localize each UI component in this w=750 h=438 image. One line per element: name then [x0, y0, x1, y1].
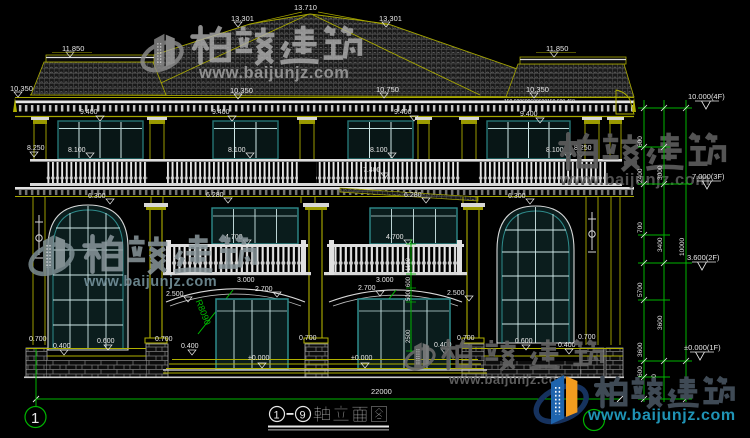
svg-text:2.700: 2.700	[255, 286, 273, 293]
svg-text:9: 9	[300, 410, 306, 422]
svg-text:4.700: 4.700	[386, 234, 404, 241]
svg-text:3.000: 3.000	[376, 277, 394, 284]
svg-text:0.700: 0.700	[457, 335, 475, 342]
svg-text:13.710: 13.710	[294, 3, 317, 12]
svg-text:3600: 3600	[657, 315, 664, 330]
svg-text:8.250: 8.250	[574, 145, 592, 152]
svg-text:22000: 22000	[371, 387, 392, 396]
svg-text:500: 500	[406, 290, 412, 301]
svg-text:0.400: 0.400	[558, 342, 576, 349]
svg-text:3.600(2F): 3.600(2F)	[687, 253, 720, 262]
svg-text:0.600: 0.600	[97, 338, 115, 345]
svg-text:9.400: 9.400	[80, 109, 98, 116]
svg-text:2.700: 2.700	[358, 285, 376, 292]
svg-text:±0.000: ±0.000	[248, 355, 269, 362]
svg-text:10.000(4F): 10.000(4F)	[688, 92, 725, 101]
svg-text:8.100: 8.100	[370, 147, 388, 154]
svg-text:6.300: 6.300	[88, 193, 106, 200]
svg-text:3.000: 3.000	[237, 277, 255, 284]
svg-text:1100: 1100	[406, 257, 412, 271]
svg-text:±0.000(1F): ±0.000(1F)	[684, 343, 721, 352]
svg-text:7.400: 7.400	[363, 167, 381, 174]
svg-text:0.600: 0.600	[515, 338, 533, 345]
svg-text:600: 600	[637, 366, 644, 377]
svg-text:2.500: 2.500	[447, 290, 465, 297]
svg-text:6.280: 6.280	[404, 192, 422, 199]
svg-text:2500: 2500	[406, 329, 412, 343]
svg-text:8.100: 8.100	[228, 147, 246, 154]
svg-text:6.280: 6.280	[206, 192, 224, 199]
svg-text:600: 600	[637, 136, 644, 147]
svg-text:5700: 5700	[637, 282, 644, 297]
svg-text:0.700: 0.700	[29, 336, 47, 343]
svg-text:2400: 2400	[637, 168, 644, 183]
svg-text:10000: 10000	[679, 238, 686, 256]
svg-text:9.400: 9.400	[212, 109, 230, 116]
svg-text:3600: 3600	[637, 342, 644, 357]
svg-text:±0.000: ±0.000	[351, 355, 372, 362]
svg-text:1: 1	[274, 410, 280, 422]
svg-text:0.400: 0.400	[181, 343, 199, 350]
svg-text:www.baijunjz.com: www.baijunjz.com	[198, 64, 349, 82]
svg-text:7.000(3F): 7.000(3F)	[692, 172, 725, 181]
svg-text:0.700: 0.700	[155, 336, 173, 343]
svg-text:150 600600600600150 600 450: 150 600600600600150 600 450	[504, 99, 575, 105]
svg-text:8.250: 8.250	[27, 145, 45, 152]
svg-text:600: 600	[406, 276, 412, 287]
svg-text:3400: 3400	[657, 237, 664, 252]
svg-text:0.400: 0.400	[53, 343, 71, 350]
svg-text:9.400: 9.400	[520, 111, 538, 118]
svg-text:0.700: 0.700	[299, 335, 317, 342]
svg-text:8.100: 8.100	[68, 147, 86, 154]
svg-text:2.500: 2.500	[166, 291, 184, 298]
svg-text:www.baijunjz.com: www.baijunjz.com	[83, 274, 217, 290]
svg-text:9.400: 9.400	[394, 109, 412, 116]
svg-text:1: 1	[31, 410, 39, 427]
svg-text:0.700: 0.700	[578, 334, 596, 341]
svg-text:3000: 3000	[657, 165, 664, 180]
svg-text:700: 700	[637, 222, 644, 233]
svg-text:www.baijunjz.com: www.baijunjz.com	[587, 407, 736, 424]
svg-text:www.baijunjz.com: www.baijunjz.com	[559, 171, 710, 189]
svg-text:6.300: 6.300	[508, 193, 526, 200]
